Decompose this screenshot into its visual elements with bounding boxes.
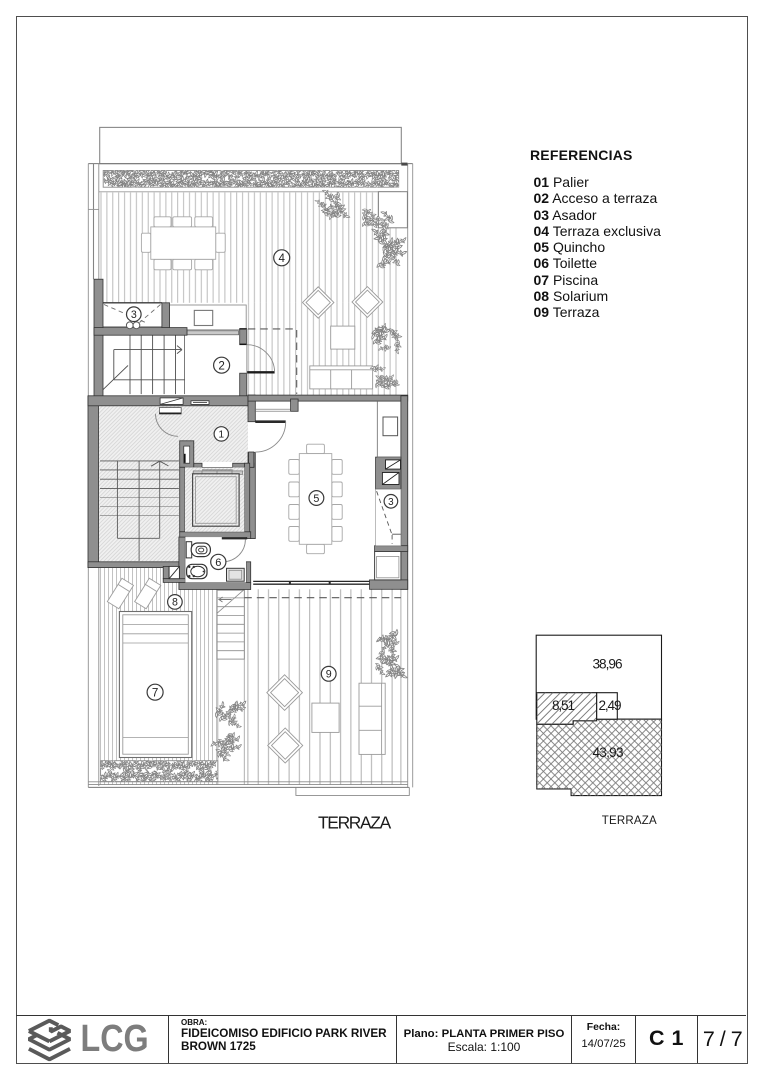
svg-text:LCG: LCG (81, 1018, 149, 1060)
